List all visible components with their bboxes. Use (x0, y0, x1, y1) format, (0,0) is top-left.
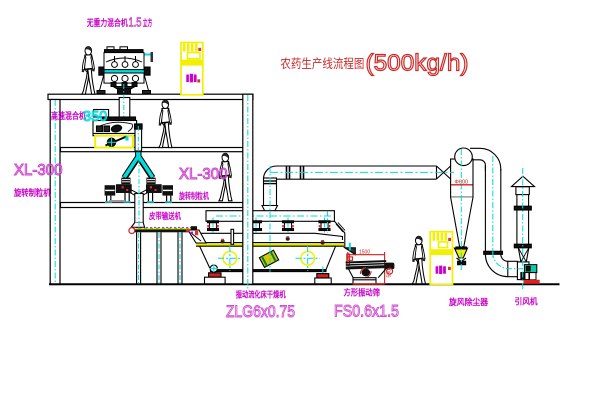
svg-text:无重力混合机: 无重力混合机 (86, 17, 128, 28)
svg-text:皮带输送机: 皮带输送机 (148, 211, 181, 221)
svg-text:方形振动筛: 方形振动筛 (344, 288, 381, 298)
svg-text:350: 350 (83, 109, 107, 125)
svg-text:1.5: 1.5 (129, 15, 142, 29)
svg-text:XL-300: XL-300 (14, 162, 63, 179)
svg-text:振动流化床干燥机: 振动流化床干燥机 (236, 289, 286, 299)
svg-text:引风机: 引风机 (515, 297, 538, 307)
svg-text:高速混合机: 高速混合机 (51, 110, 86, 121)
svg-text:590: 590 (387, 269, 393, 278)
svg-text:FS0.6x1.5: FS0.6x1.5 (334, 302, 399, 321)
svg-text:XL-300: XL-300 (179, 166, 228, 183)
svg-text:旋风除尘器: 旋风除尘器 (448, 297, 488, 307)
svg-text:ZLG6x0.75: ZLG6x0.75 (226, 302, 295, 321)
svg-text:1500: 1500 (359, 249, 370, 255)
svg-text:立方: 立方 (143, 17, 153, 28)
svg-text:(500kg/h): (500kg/h) (366, 50, 469, 76)
svg-text:农药生产线流程图: 农药生产线流程图 (280, 56, 364, 71)
svg-text:旋转制粒机: 旋转制粒机 (13, 187, 50, 198)
svg-text:旋转制粒机: 旋转制粒机 (178, 191, 209, 201)
